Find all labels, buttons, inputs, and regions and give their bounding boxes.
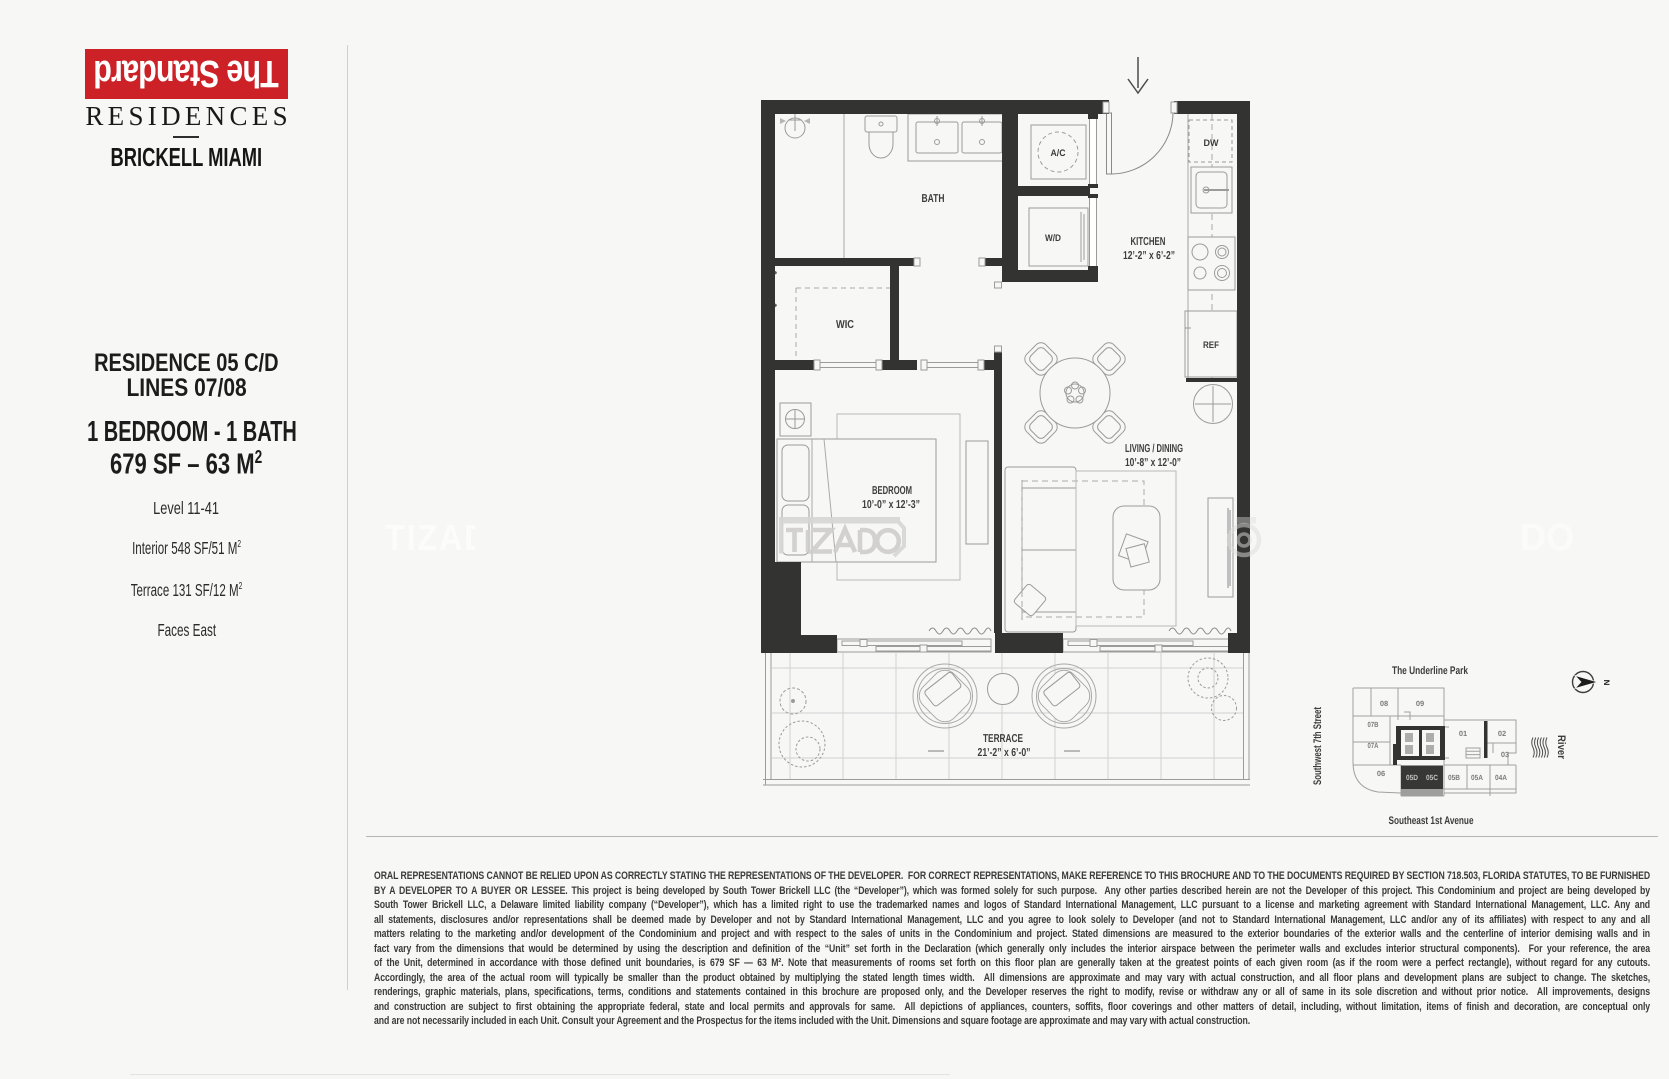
svg-text:12’-2” x 6’-2”: 12’-2” x 6’-2” (1123, 250, 1175, 262)
svg-text:07B: 07B (1368, 720, 1379, 729)
svg-text:01: 01 (1459, 729, 1467, 738)
svg-text:10’-0” x 12’-3”: 10’-0” x 12’-3” (862, 499, 920, 511)
svg-text:02: 02 (1498, 729, 1506, 738)
svg-text:06: 06 (1377, 769, 1385, 778)
svg-text:BEDROOM: BEDROOM (872, 485, 912, 497)
svg-text:09: 09 (1416, 699, 1424, 708)
svg-text:A/C: A/C (1051, 148, 1066, 159)
svg-text:The Underline Park: The Underline Park (1392, 665, 1469, 677)
svg-text:REF: REF (1203, 340, 1219, 351)
svg-text:07A: 07A (1368, 741, 1379, 750)
svg-text:05A: 05A (1471, 773, 1484, 782)
svg-text:WIC: WIC (836, 319, 854, 331)
svg-text:W/D: W/D (1045, 233, 1061, 244)
svg-text:Southeast 1st Avenue: Southeast 1st Avenue (1389, 815, 1474, 827)
svg-text:KITCHEN: KITCHEN (1131, 236, 1166, 248)
svg-text:LIVING / DINING: LIVING / DINING (1125, 443, 1183, 455)
svg-text:N: N (1602, 680, 1611, 686)
svg-text:05D: 05D (1406, 773, 1419, 782)
svg-text:BATH: BATH (922, 193, 945, 205)
svg-text:05B: 05B (1448, 773, 1461, 782)
svg-text:Southwest 7th Street: Southwest 7th Street (1312, 707, 1324, 785)
svg-text:03: 03 (1501, 750, 1509, 759)
svg-text:05C: 05C (1426, 773, 1439, 782)
svg-text:TERRACE: TERRACE (983, 733, 1023, 745)
svg-text:21’-2” x 6’-0”: 21’-2” x 6’-0” (978, 747, 1031, 759)
svg-text:DW: DW (1204, 138, 1219, 149)
svg-text:10’-8” x 12’-0”: 10’-8” x 12’-0” (1125, 457, 1181, 469)
svg-text:08: 08 (1380, 699, 1388, 708)
svg-text:River: River (1555, 735, 1567, 760)
svg-text:04A: 04A (1495, 773, 1508, 782)
